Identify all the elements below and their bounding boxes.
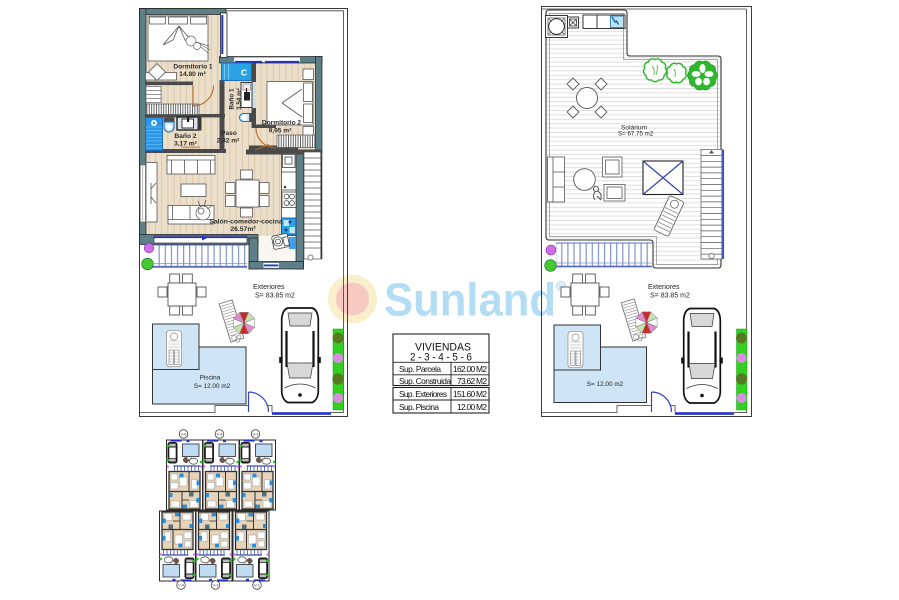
- svg-text:S= 67.75 m2: S= 67.75 m2: [618, 131, 654, 138]
- svg-text:V-6: V-6: [180, 432, 187, 437]
- svg-text:73.62 M2: 73.62 M2: [457, 376, 487, 386]
- svg-text:C: C: [241, 68, 247, 78]
- svg-text:S= 83.85 m2: S= 83.85 m2: [255, 293, 295, 300]
- svg-text:Exteriores: Exteriores: [648, 284, 680, 291]
- svg-text:Dormitorio 2: Dormitorio 2: [262, 120, 302, 127]
- svg-text:Piscina: Piscina: [200, 375, 221, 382]
- svg-text:Sup. Construida: Sup. Construida: [399, 376, 451, 386]
- svg-text:3,54 m²: 3,54 m²: [236, 88, 243, 110]
- svg-text:V-1: V-1: [254, 583, 261, 588]
- svg-text:9,95 m²: 9,95 m²: [269, 128, 293, 135]
- svg-text:Sup. Piscina: Sup. Piscina: [399, 402, 439, 412]
- svg-text:V-3: V-3: [252, 432, 259, 437]
- svg-text:Baño 1: Baño 1: [229, 88, 236, 109]
- svg-text:2 - 3 - 4 - 5 - 6: 2 - 3 - 4 - 5 - 6: [410, 352, 472, 364]
- svg-text:Exteriores: Exteriores: [253, 284, 285, 291]
- svg-text:12.00 M2: 12.00 M2: [457, 402, 487, 412]
- svg-text:3,17 m²: 3,17 m²: [174, 141, 198, 148]
- svg-text:V-4: V-4: [178, 583, 185, 588]
- svg-text:V-4: V-4: [216, 432, 223, 437]
- svg-text:151.60 M2: 151.60 M2: [453, 389, 487, 399]
- svg-text:Salón-comedor-cocina: Salón-comedor-cocina: [209, 219, 282, 226]
- svg-text:Sunland: Sunland: [384, 274, 556, 326]
- svg-text:V-3: V-3: [212, 583, 219, 588]
- svg-text:14.80 m²: 14.80 m²: [179, 71, 206, 78]
- svg-text:S= 83.85 m2: S= 83.85 m2: [650, 293, 690, 300]
- svg-text:S= 12.00 m2: S= 12.00 m2: [194, 383, 231, 390]
- svg-text:2,32 m²: 2,32 m²: [217, 138, 241, 145]
- svg-text:26.57m²: 26.57m²: [230, 226, 256, 233]
- svg-text:Paso: Paso: [221, 130, 237, 137]
- svg-text:Sup. Exteriores: Sup. Exteriores: [399, 389, 447, 399]
- svg-text:S= 12.00 m2: S= 12.00 m2: [587, 381, 624, 388]
- svg-text:162.00 M2: 162.00 M2: [453, 364, 487, 374]
- svg-text:Dormitorio 1: Dormitorio 1: [173, 64, 213, 71]
- svg-text:Baño 2: Baño 2: [175, 133, 197, 140]
- svg-text:Sup. Parcela: Sup. Parcela: [399, 364, 441, 374]
